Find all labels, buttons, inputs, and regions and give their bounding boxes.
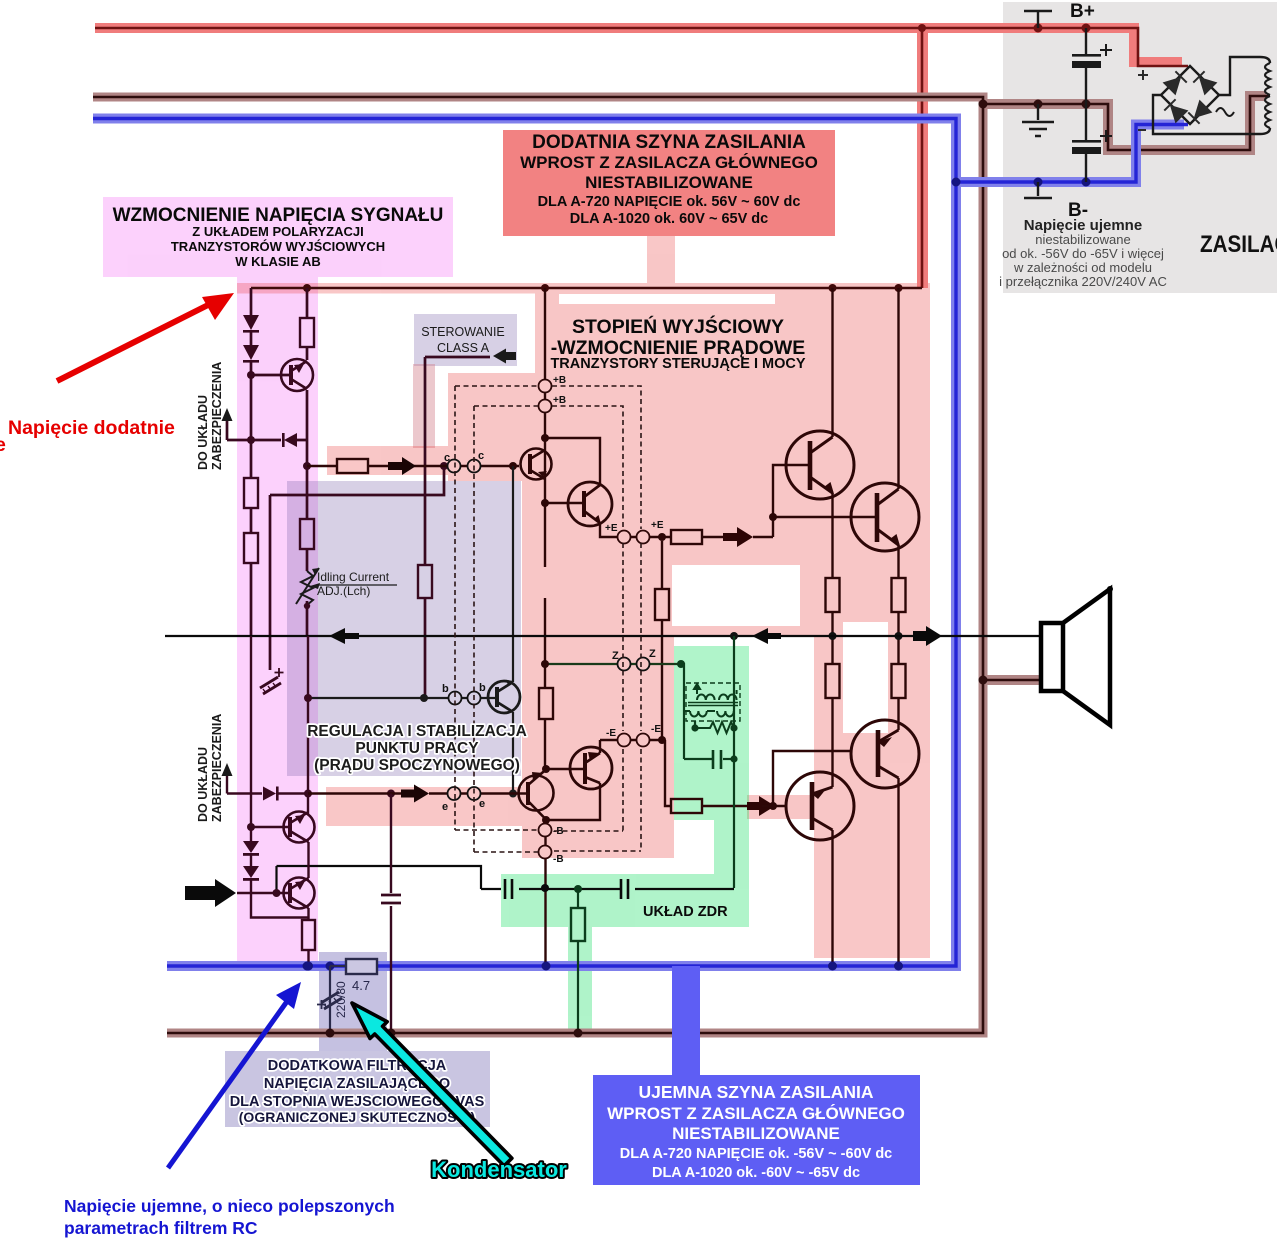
svg-text:ZABEZPIECZENIA: ZABEZPIECZENIA	[210, 362, 224, 470]
svg-text:niestabilizowane: niestabilizowane	[1035, 232, 1130, 247]
svg-text:od ok. -56V do -65V i więcej: od ok. -56V do -65V i więcej	[1002, 246, 1164, 261]
svg-text:Z: Z	[612, 650, 619, 662]
svg-text:UJEMNA SZYNA ZASILANIA: UJEMNA SZYNA ZASILANIA	[639, 1082, 874, 1102]
svg-text:DLA A-1020 ok. 60V ~ 65V dc: DLA A-1020 ok. 60V ~ 65V dc	[570, 211, 768, 227]
svg-text:WPROST Z ZASILACZA GŁÓWNEGO: WPROST Z ZASILACZA GŁÓWNEGO	[607, 1104, 905, 1123]
svg-text:Idling Current: Idling Current	[317, 570, 390, 584]
svg-text:b: b	[479, 682, 486, 694]
svg-text:UKŁAD ZDR: UKŁAD ZDR	[643, 904, 728, 920]
svg-text:W KLASIE AB: W KLASIE AB	[235, 254, 320, 269]
svg-text:-E: -E	[606, 728, 616, 739]
svg-text:PUNKTU PRACY: PUNKTU PRACY	[355, 740, 479, 757]
svg-text:DODATNIA SZYNA ZASILANIA: DODATNIA SZYNA ZASILANIA	[532, 132, 806, 153]
svg-text:Napięcie dodatnie: Napięcie dodatnie	[8, 417, 175, 439]
svg-text:NIESTABILIZOWANE: NIESTABILIZOWANE	[585, 173, 753, 192]
svg-text:+B: +B	[553, 375, 566, 386]
svg-text:WPROST Z ZASILACZA GŁÓWNEGO: WPROST Z ZASILACZA GŁÓWNEGO	[520, 153, 818, 172]
svg-text:DLA A-720 NAPIĘCIE ok. -56V ~: DLA A-720 NAPIĘCIE ok. -56V ~ -60V dc	[620, 1146, 893, 1162]
svg-text:+B: +B	[553, 395, 566, 406]
svg-text:e: e	[479, 798, 485, 810]
svg-text:+E: +E	[651, 520, 664, 531]
svg-text:b: b	[442, 683, 449, 695]
svg-text:REGULACJA I STABILIZACJA: REGULACJA I STABILIZACJA	[307, 723, 527, 740]
svg-text:c: c	[478, 450, 484, 462]
svg-text:ADJ.(Lch): ADJ.(Lch)	[317, 584, 370, 598]
svg-text:ZABEZPIECZENIA: ZABEZPIECZENIA	[210, 714, 224, 822]
svg-text:STEROWANIE: STEROWANIE	[421, 325, 505, 339]
svg-text:DLA A-1020 ok. -60V ~ -65V dc: DLA A-1020 ok. -60V ~ -65V dc	[652, 1165, 860, 1181]
svg-text:-B: -B	[553, 854, 564, 865]
svg-text:(OGRANICZONEJ SKUTECZNOŚCI): (OGRANICZONEJ SKUTECZNOŚCI)	[239, 1108, 475, 1125]
svg-text:Napięcie ujemne, o nieco polep: Napięcie ujemne, o nieco polepszonych	[64, 1196, 395, 1216]
svg-text:220/80: 220/80	[334, 981, 348, 1018]
svg-text:e: e	[0, 434, 6, 456]
svg-text:ZASILACZ: ZASILACZ	[1200, 231, 1277, 258]
svg-text:Kondensator: Kondensator	[431, 1157, 567, 1182]
svg-text:e: e	[442, 801, 448, 813]
svg-text:TRANZYSTORY STERUJĄCE I MOCY: TRANZYSTORY STERUJĄCE I MOCY	[550, 356, 805, 372]
svg-text:DO UKŁADU: DO UKŁADU	[196, 747, 210, 822]
svg-text:i przełącznika 220V/240V AC: i przełącznika 220V/240V AC	[999, 274, 1167, 289]
svg-text:parametrach filtrem RC: parametrach filtrem RC	[64, 1218, 258, 1238]
svg-text:w zależności od modelu: w zależności od modelu	[1013, 260, 1152, 275]
svg-text:CLASS A: CLASS A	[437, 341, 490, 355]
svg-text:DLA A-720 NAPIĘCIE ok. 56V ~ 6: DLA A-720 NAPIĘCIE ok. 56V ~ 60V dc	[538, 194, 801, 210]
svg-text:c: c	[444, 452, 450, 464]
svg-text:DO UKŁADU: DO UKŁADU	[196, 395, 210, 470]
svg-text:-E: -E	[651, 724, 661, 735]
svg-text:B+: B+	[1070, 1, 1095, 22]
svg-text:(PRĄDU SPOCZYNOWEGO): (PRĄDU SPOCZYNOWEGO)	[314, 757, 520, 774]
svg-text:4.7: 4.7	[352, 978, 370, 993]
svg-text:+E: +E	[605, 523, 618, 534]
svg-text:WZMOCNIENIE NAPIĘCIA SYGNAŁU: WZMOCNIENIE NAPIĘCIA SYGNAŁU	[113, 205, 444, 226]
svg-text:TRANZYSTORÓW WYJŚCIOWYCH: TRANZYSTORÓW WYJŚCIOWYCH	[171, 239, 385, 254]
svg-text:STOPIEŃ WYJŚCIOWY: STOPIEŃ WYJŚCIOWY	[572, 314, 784, 338]
svg-text:NIESTABILIZOWANE: NIESTABILIZOWANE	[672, 1124, 840, 1143]
svg-text:Z: Z	[649, 648, 656, 660]
svg-text:Z UKŁADEM POLARYZACJI: Z UKŁADEM POLARYZACJI	[192, 224, 363, 239]
